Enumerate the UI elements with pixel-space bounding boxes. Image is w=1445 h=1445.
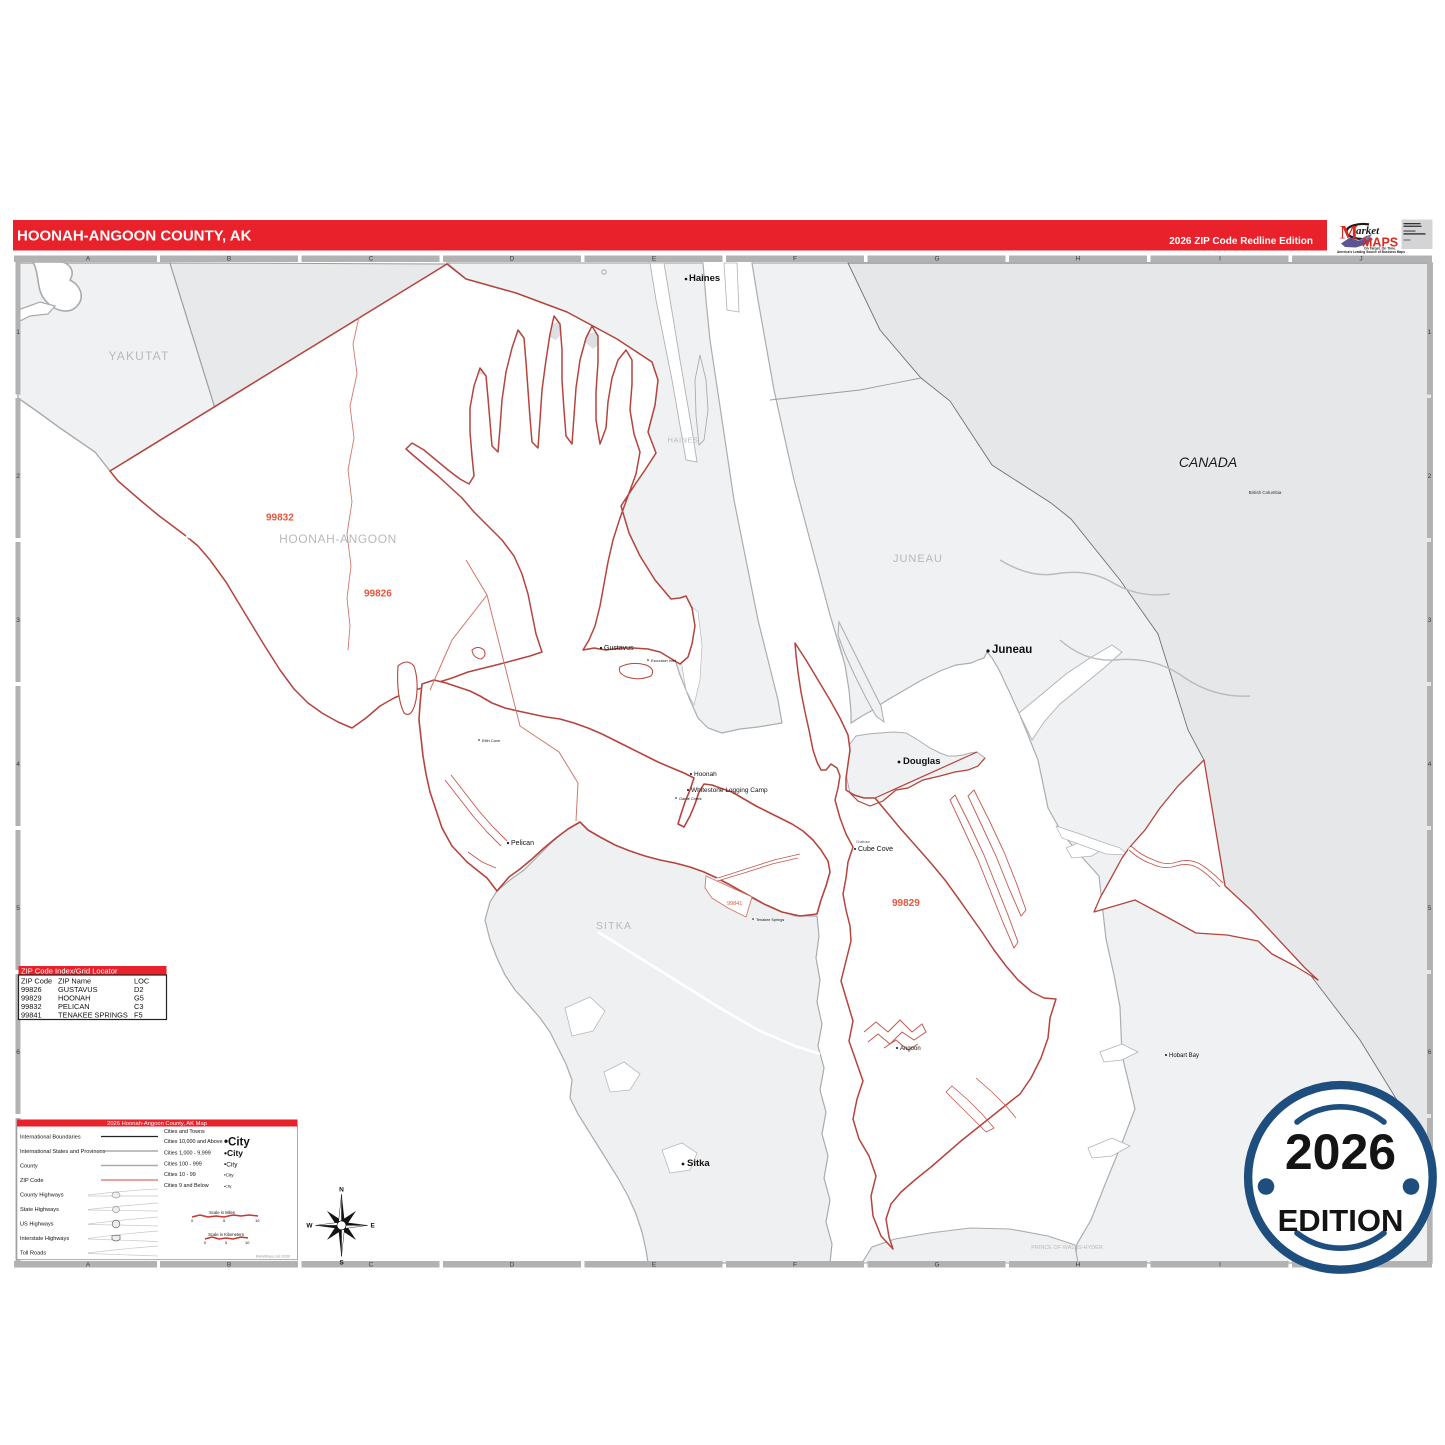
svg-text:Cube Cove: Cube Cove [858,846,893,853]
svg-text:•City: •City [224,1173,234,1178]
svg-text:Pelican: Pelican [511,840,534,847]
svg-text:•City: •City [224,1148,243,1158]
svg-text:PRINCE OF WALES-HYDER: PRINCE OF WALES-HYDER [1031,1245,1103,1251]
svg-text:C: C [369,256,374,263]
svg-text:Angoon: Angoon [900,1046,921,1052]
svg-text:Elfin Cove: Elfin Cove [482,738,501,743]
svg-text:Sitka: Sitka [687,1158,710,1169]
svg-text:4: 4 [16,761,20,768]
svg-text:HOONAH-ANGOON COUNTY, AK: HOONAH-ANGOON COUNTY, AK [17,228,252,245]
svg-text:Cities 9 and Below: Cities 9 and Below [164,1183,209,1189]
svg-text:6: 6 [16,1049,20,1056]
svg-text:10: 10 [245,1240,250,1245]
svg-text:A: A [86,256,91,263]
svg-text:•City: •City [224,1137,250,1149]
svg-text:N: N [339,1186,344,1193]
svg-text:Hobart Bay: Hobart Bay [1169,1053,1199,1059]
svg-text:5: 5 [16,905,20,912]
svg-text:G: G [934,1262,939,1269]
svg-text:F: F [793,256,797,263]
svg-text:2026 Hoonah-Angoon County, AK: 2026 Hoonah-Angoon County, AK Map [107,1121,207,1127]
svg-text:State Highways: State Highways [20,1207,59,1213]
svg-text:H: H [1076,1262,1081,1269]
svg-text:•City: •City [224,1185,232,1189]
svg-text:F: F [793,1262,797,1269]
svg-text:I: I [1219,1262,1221,1269]
svg-text:YAKUTAT: YAKUTAT [108,349,169,363]
svg-text:America's Leading Source of B: America's Leading Source of Business Map… [1337,250,1405,254]
svg-text:HAINES: HAINES [668,436,699,445]
svg-text:Juneau: Juneau [992,644,1032,656]
svg-text:Tenakee Springs: Tenakee Springs [756,918,784,922]
svg-text:99841: 99841 [727,901,742,907]
svg-text:Game Creek: Game Creek [679,796,702,801]
svg-text:C: C [369,1262,374,1269]
svg-text:Whitestone Logging Camp: Whitestone Logging Camp [691,787,768,794]
svg-text:EDITION: EDITION [1278,1203,1404,1238]
svg-text:3: 3 [16,617,20,624]
svg-text:County: County [20,1164,38,1170]
svg-text:Cities 1,000 - 9,999: Cities 1,000 - 9,999 [164,1151,211,1157]
svg-text:Cities 10,000 and Above: Cities 10,000 and Above [164,1139,222,1145]
svg-text:Cities 10 - 99: Cities 10 - 99 [164,1172,196,1178]
svg-text:ZIP Code: ZIP Code [20,1178,44,1184]
svg-text:HOONAH-ANGOON: HOONAH-ANGOON [279,532,397,546]
svg-text:1: 1 [16,329,20,336]
svg-text:•City: •City [224,1162,238,1169]
svg-text:F5: F5 [134,1011,143,1020]
svg-text:E: E [652,256,657,263]
svg-text:Interstate Highways: Interstate Highways [20,1236,69,1242]
svg-text:Douglas: Douglas [903,756,940,767]
svg-text:Hoonah: Hoonah [694,771,717,778]
svg-text:US Highways: US Highways [20,1222,54,1228]
svg-text:ZIP Code Index/Grid Locator: ZIP Code Index/Grid Locator [21,966,118,975]
svg-text:4: 4 [1428,761,1432,768]
svg-text:B: B [227,1262,231,1269]
svg-text:99826: 99826 [364,589,392,600]
svg-text:1: 1 [1428,329,1432,336]
svg-text:Haines: Haines [689,273,720,284]
svg-text:2026 ZIP Code Redline Edition: 2026 ZIP Code Redline Edition [1169,236,1313,247]
svg-text:SITKA: SITKA [596,920,632,932]
svg-text:G: G [934,256,939,263]
svg-text:County Highways: County Highways [20,1193,64,1199]
svg-text:Excursion Inlet: Excursion Inlet [651,659,677,663]
svg-text:H: H [1076,256,1081,263]
svg-text:D: D [510,256,515,263]
svg-text:A: A [86,1262,91,1269]
svg-text:2026: 2026 [1285,1124,1396,1180]
svg-text:2: 2 [16,473,20,480]
svg-text:6: 6 [1428,1049,1432,1056]
svg-text:E: E [371,1223,376,1230]
svg-text:Toll Roads: Toll Roads [20,1251,46,1257]
svg-text:Chatham: Chatham [856,840,870,844]
svg-text:Cities and Towns: Cities and Towns [164,1129,205,1135]
svg-text:JUNEAU: JUNEAU [893,553,943,565]
svg-text:5: 5 [1428,905,1432,912]
svg-text:MarketMaps.com 02026: MarketMaps.com 02026 [256,1255,290,1259]
svg-text:British Columbia: British Columbia [1249,490,1282,495]
svg-text:S: S [339,1259,344,1266]
svg-text:B: B [227,256,231,263]
svg-text:Scale in Miles: Scale in Miles [209,1210,235,1215]
svg-text:CANADA: CANADA [1179,454,1237,470]
svg-text:Cities 100 - 999: Cities 100 - 999 [164,1162,202,1168]
svg-text:2: 2 [1428,473,1432,480]
svg-text:99832: 99832 [266,513,294,524]
svg-text:E: E [652,1262,657,1269]
svg-text:D: D [510,1262,515,1269]
svg-text:W: W [306,1223,313,1230]
svg-text:International States and Provi: International States and Provinces [20,1149,105,1155]
svg-text:International Boundaries: International Boundaries [20,1135,81,1141]
svg-text:10: 10 [255,1218,260,1223]
svg-text:I: I [1219,256,1221,263]
svg-text:3: 3 [1428,617,1432,624]
svg-text:99829: 99829 [892,898,920,909]
svg-text:Gustavus: Gustavus [604,645,634,652]
svg-text:Scale in Kilometers: Scale in Kilometers [208,1232,244,1237]
svg-text:J: J [1359,256,1362,263]
svg-text:99841: 99841 [21,1011,42,1020]
svg-text:TENAKEE SPRINGS: TENAKEE SPRINGS [58,1011,128,1020]
